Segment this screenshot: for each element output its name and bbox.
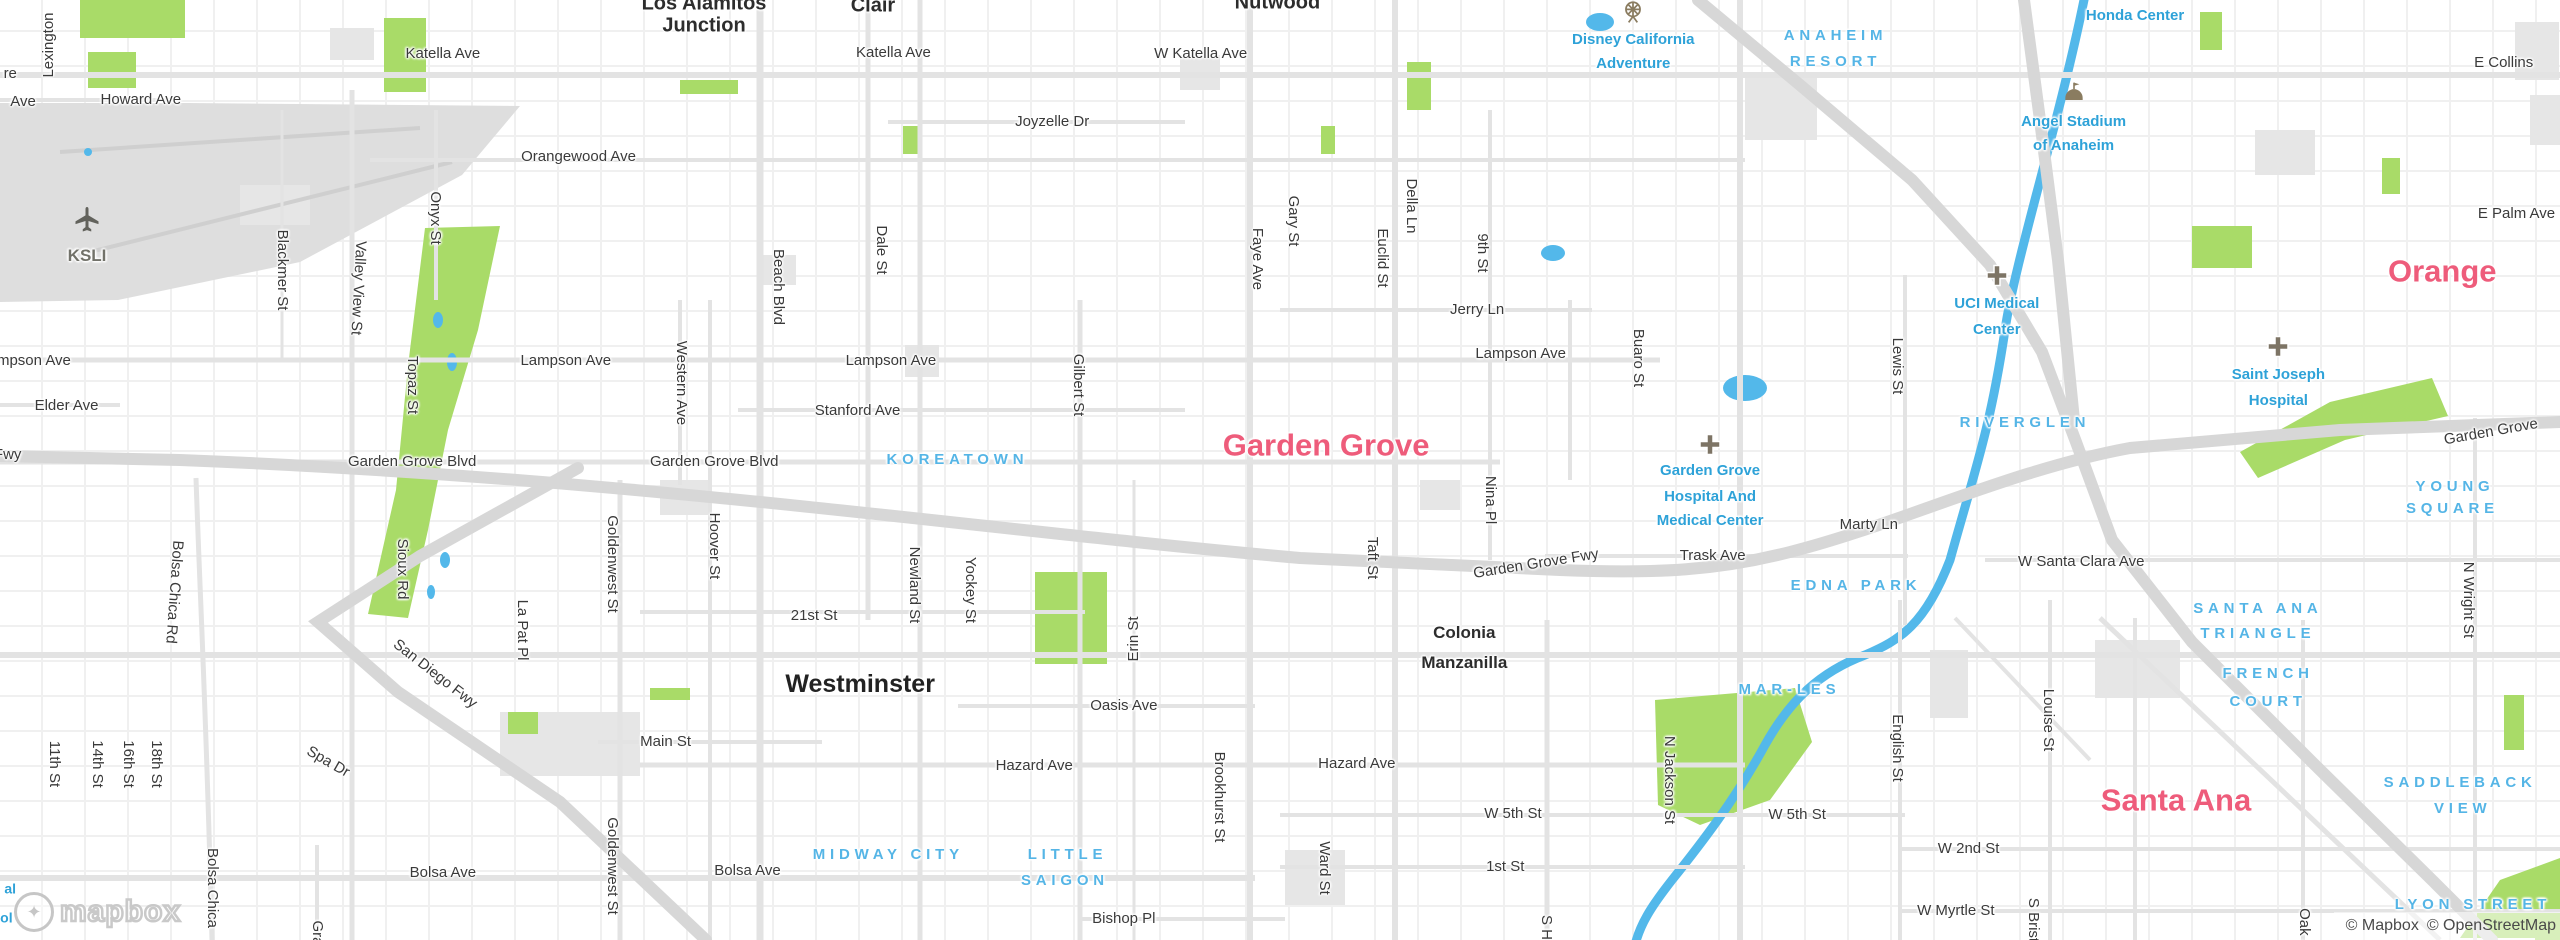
label-view: VIEW bbox=[2434, 801, 2492, 817]
label-lampson-ave-3: Lampson Ave bbox=[846, 353, 937, 369]
label-garden-grove-2: Garden Grove bbox=[1223, 429, 1430, 462]
label-hazard-ave: Hazard Ave bbox=[996, 758, 1073, 774]
label-edna-park: EDNA PARK bbox=[1791, 578, 1922, 594]
label-medical-center: Medical Center bbox=[1657, 513, 1764, 529]
label-triangle: TRIANGLE bbox=[2200, 626, 2315, 642]
label-goldenwest-st-2: Goldenwest St bbox=[604, 817, 620, 915]
label-lampson-ave-2: Lampson Ave bbox=[520, 353, 611, 369]
label-marty-ln: Marty Ln bbox=[1840, 518, 1898, 534]
label-los-alamitos: Los Alamitos bbox=[642, 0, 767, 14]
label-adventure: Adventure bbox=[1596, 56, 1670, 72]
airplane-icon bbox=[72, 204, 102, 239]
hospital-cross-icon bbox=[2266, 334, 2290, 363]
label-square: SQUARE bbox=[2406, 502, 2499, 518]
label-gra: Gra bbox=[310, 921, 326, 940]
label-clair: Clair bbox=[851, 0, 895, 16]
label-lyon-street: LYON STREET bbox=[2395, 897, 2551, 913]
label-ave: Ave bbox=[10, 95, 36, 111]
label-faye-ave: Faye Ave bbox=[1249, 228, 1265, 290]
label-bishop-pl: Bishop Pl bbox=[1092, 911, 1155, 927]
label-trask-ave: Trask Ave bbox=[1680, 548, 1746, 564]
mapbox-logo-icon: ✦ bbox=[14, 892, 54, 932]
label-lewis-st: Lewis St bbox=[1889, 337, 1905, 394]
attribution-bar: © Mapbox © OpenStreetMap bbox=[2334, 912, 2560, 940]
label-gilbert-st: Gilbert St bbox=[1070, 354, 1086, 417]
hospital-cross-icon bbox=[1985, 264, 2009, 293]
label-goldenwest-st: Goldenwest St bbox=[604, 515, 620, 613]
stadium-icon bbox=[2061, 80, 2087, 111]
label-orange: Orange bbox=[2388, 255, 2497, 288]
label-1st-st: 1st St bbox=[1486, 859, 1524, 875]
map-canvas[interactable]: ✦ mapbox © Mapbox © OpenStreetMap reAveH… bbox=[0, 0, 2560, 940]
label-katella-ave-2: Katella Ave bbox=[856, 45, 931, 61]
mapbox-wordmark: mapbox bbox=[60, 895, 181, 929]
label-jerry-ln: Jerry Ln bbox=[1450, 302, 1504, 318]
label-saint-joseph: Saint Joseph bbox=[2232, 367, 2325, 383]
label-s-harbor: S Harbor bbox=[1538, 915, 1554, 940]
label-howard-ave: Howard Ave bbox=[100, 92, 181, 108]
label-angel-stadium: Angel Stadium bbox=[2021, 114, 2126, 130]
label-hoover-st: Hoover St bbox=[706, 513, 722, 580]
label-11th-st: 11th St bbox=[46, 741, 62, 787]
label-stanford-ave: Stanford Ave bbox=[815, 403, 901, 419]
label-21st-st: 21st St bbox=[791, 608, 838, 624]
label-oak-st: Oak St bbox=[2296, 908, 2312, 940]
label-lampson-ave-4: Lampson Ave bbox=[1475, 347, 1566, 363]
mapbox-logo[interactable]: ✦ mapbox bbox=[14, 892, 181, 932]
label-w-santa-clara-ave: W Santa Clara Ave bbox=[2018, 554, 2144, 570]
attribution-osm[interactable]: © OpenStreetMap bbox=[2427, 917, 2556, 935]
label-e-palm-ave: E Palm Ave bbox=[2478, 206, 2555, 222]
ferris-wheel-icon bbox=[1620, 0, 1646, 30]
label-n-wright-st: N Wright St bbox=[2460, 562, 2476, 638]
label-elder-ave: Elder Ave bbox=[35, 398, 99, 414]
label-onyx-st: Onyx St bbox=[427, 191, 443, 244]
label-erin-st: Erin St bbox=[1126, 617, 1142, 662]
label-garden-grove-blvd-2: Garden Grove Blvd bbox=[650, 454, 778, 470]
label-taft-st: Taft St bbox=[1364, 537, 1380, 580]
label-saddleback: SADDLEBACK bbox=[2384, 775, 2537, 791]
label-garden-grove-blvd: Garden Grove Blvd bbox=[348, 454, 476, 470]
label-junction: Junction bbox=[662, 16, 745, 37]
label-manzanilla: Manzanilla bbox=[1421, 654, 1507, 672]
label-disney-california: Disney California bbox=[1572, 33, 1695, 49]
label-dale-st: Dale St bbox=[873, 225, 889, 274]
label-english-st: English St bbox=[1889, 714, 1905, 782]
label-hospital: Hospital bbox=[2249, 394, 2308, 410]
attribution-mapbox[interactable]: © Mapbox bbox=[2346, 917, 2419, 935]
label-resort: RESORT bbox=[1790, 54, 1881, 70]
label-ol: ol bbox=[0, 911, 12, 926]
label-lampson-ave: Lampson Ave bbox=[0, 353, 71, 369]
label-uci-medical: UCI Medical bbox=[1954, 296, 2039, 312]
label-blackmer-st: Blackmer St bbox=[274, 229, 290, 310]
label-w-5th-st: W 5th St bbox=[1484, 806, 1542, 822]
label-center: Center bbox=[1973, 322, 2021, 338]
label-bolsa-ave: Bolsa Ave bbox=[410, 865, 476, 881]
label-newland-st: Newland St bbox=[906, 546, 922, 623]
label-main-st: Main St bbox=[640, 734, 691, 750]
label-brookhurst-st: Brookhurst St bbox=[1211, 752, 1227, 843]
label-w-katella-ave: W Katella Ave bbox=[1154, 46, 1247, 62]
label-western-ave: Western Ave bbox=[673, 340, 689, 425]
label-orangewood-ave: Orangewood Ave bbox=[521, 149, 636, 165]
label-ksli: KSLI bbox=[68, 247, 107, 265]
label-katella-ave: Katella Ave bbox=[405, 46, 480, 62]
label-westminster: Westminster bbox=[785, 671, 935, 697]
label-sioux-rd: Sioux Rd bbox=[394, 538, 410, 599]
label-bolsa-ave-2: Bolsa Ave bbox=[714, 864, 780, 880]
label-anaheim: ANAHEIM bbox=[1784, 28, 1888, 44]
hospital-cross-icon bbox=[1698, 432, 1722, 461]
label-euclid-st: Euclid St bbox=[1375, 228, 1391, 287]
label-riverglen: RIVERGLEN bbox=[1960, 415, 2091, 431]
label-n-jackson-st: N Jackson St bbox=[1661, 736, 1677, 824]
label-9th-st: 9th St bbox=[1474, 233, 1490, 272]
label-buaro-st: Buaro St bbox=[1631, 329, 1647, 387]
label-santa-ana: Santa Ana bbox=[2101, 785, 2251, 818]
label-yockey-st: Yockey St bbox=[962, 557, 978, 623]
label-al: al bbox=[4, 882, 16, 897]
label-court: COURT bbox=[2229, 694, 2306, 710]
label-joyzelle-dr: Joyzelle Dr bbox=[1015, 114, 1089, 130]
label-w-2nd-st: W 2nd St bbox=[1938, 841, 2000, 857]
label-s-bristol-st: S Bristol St bbox=[2025, 898, 2041, 940]
label-santa-ana-2: SANTA ANA bbox=[2193, 601, 2322, 617]
label-w-myrtle-st: W Myrtle St bbox=[1917, 903, 1995, 919]
label-nina-pl: Nina Pl bbox=[1482, 476, 1498, 524]
label-w-5th-st-2: W 5th St bbox=[1768, 807, 1826, 823]
label-16th-st: 16th St bbox=[120, 740, 136, 788]
label-ward-st: Ward St bbox=[1316, 841, 1332, 895]
label-14th-st: 14th St bbox=[89, 740, 105, 788]
label-bolsa-chica: Bolsa Chica bbox=[205, 848, 221, 928]
label-mar-les: MAR-LES bbox=[1738, 682, 1840, 698]
label-la-pat-pl: La Pat Pl bbox=[514, 599, 530, 660]
label-garden-grove-3: Garden Grove bbox=[1660, 463, 1760, 479]
label-nutwood: Nutwood bbox=[1235, 0, 1321, 13]
label-beach-blvd: Beach Blvd bbox=[770, 249, 786, 325]
label-oasis-ave: Oasis Ave bbox=[1090, 698, 1157, 714]
label-midway-city: MIDWAY CITY bbox=[813, 848, 964, 864]
label-young: YOUNG bbox=[2416, 479, 2495, 495]
label-little: LITTLE bbox=[1028, 848, 1108, 864]
label-della-ln: Della Ln bbox=[1403, 178, 1419, 233]
label-e-collins: E Collins bbox=[2474, 55, 2533, 71]
label-french: FRENCH bbox=[2223, 666, 2314, 682]
label-topaz-st: Topaz St bbox=[404, 356, 420, 414]
label-honda-center: Honda Center bbox=[2086, 8, 2184, 24]
label-colonia: Colonia bbox=[1433, 624, 1495, 642]
label-louise-st: Louise St bbox=[2040, 689, 2056, 752]
label-saigon: SAIGON bbox=[1021, 873, 1109, 889]
label-gary-st: Gary St bbox=[1285, 195, 1301, 246]
label-koreatown: KOREATOWN bbox=[887, 452, 1029, 468]
label-of-anaheim: of Anaheim bbox=[2033, 138, 2114, 154]
label-lexington: Lexington bbox=[41, 13, 57, 78]
label-18th-st: 18th St bbox=[148, 740, 164, 788]
label-re: re bbox=[4, 66, 17, 82]
label-fwy: Fwy bbox=[0, 447, 21, 463]
label-hospital-and: Hospital And bbox=[1664, 489, 1756, 505]
label-hazard-ave-2: Hazard Ave bbox=[1318, 756, 1395, 772]
